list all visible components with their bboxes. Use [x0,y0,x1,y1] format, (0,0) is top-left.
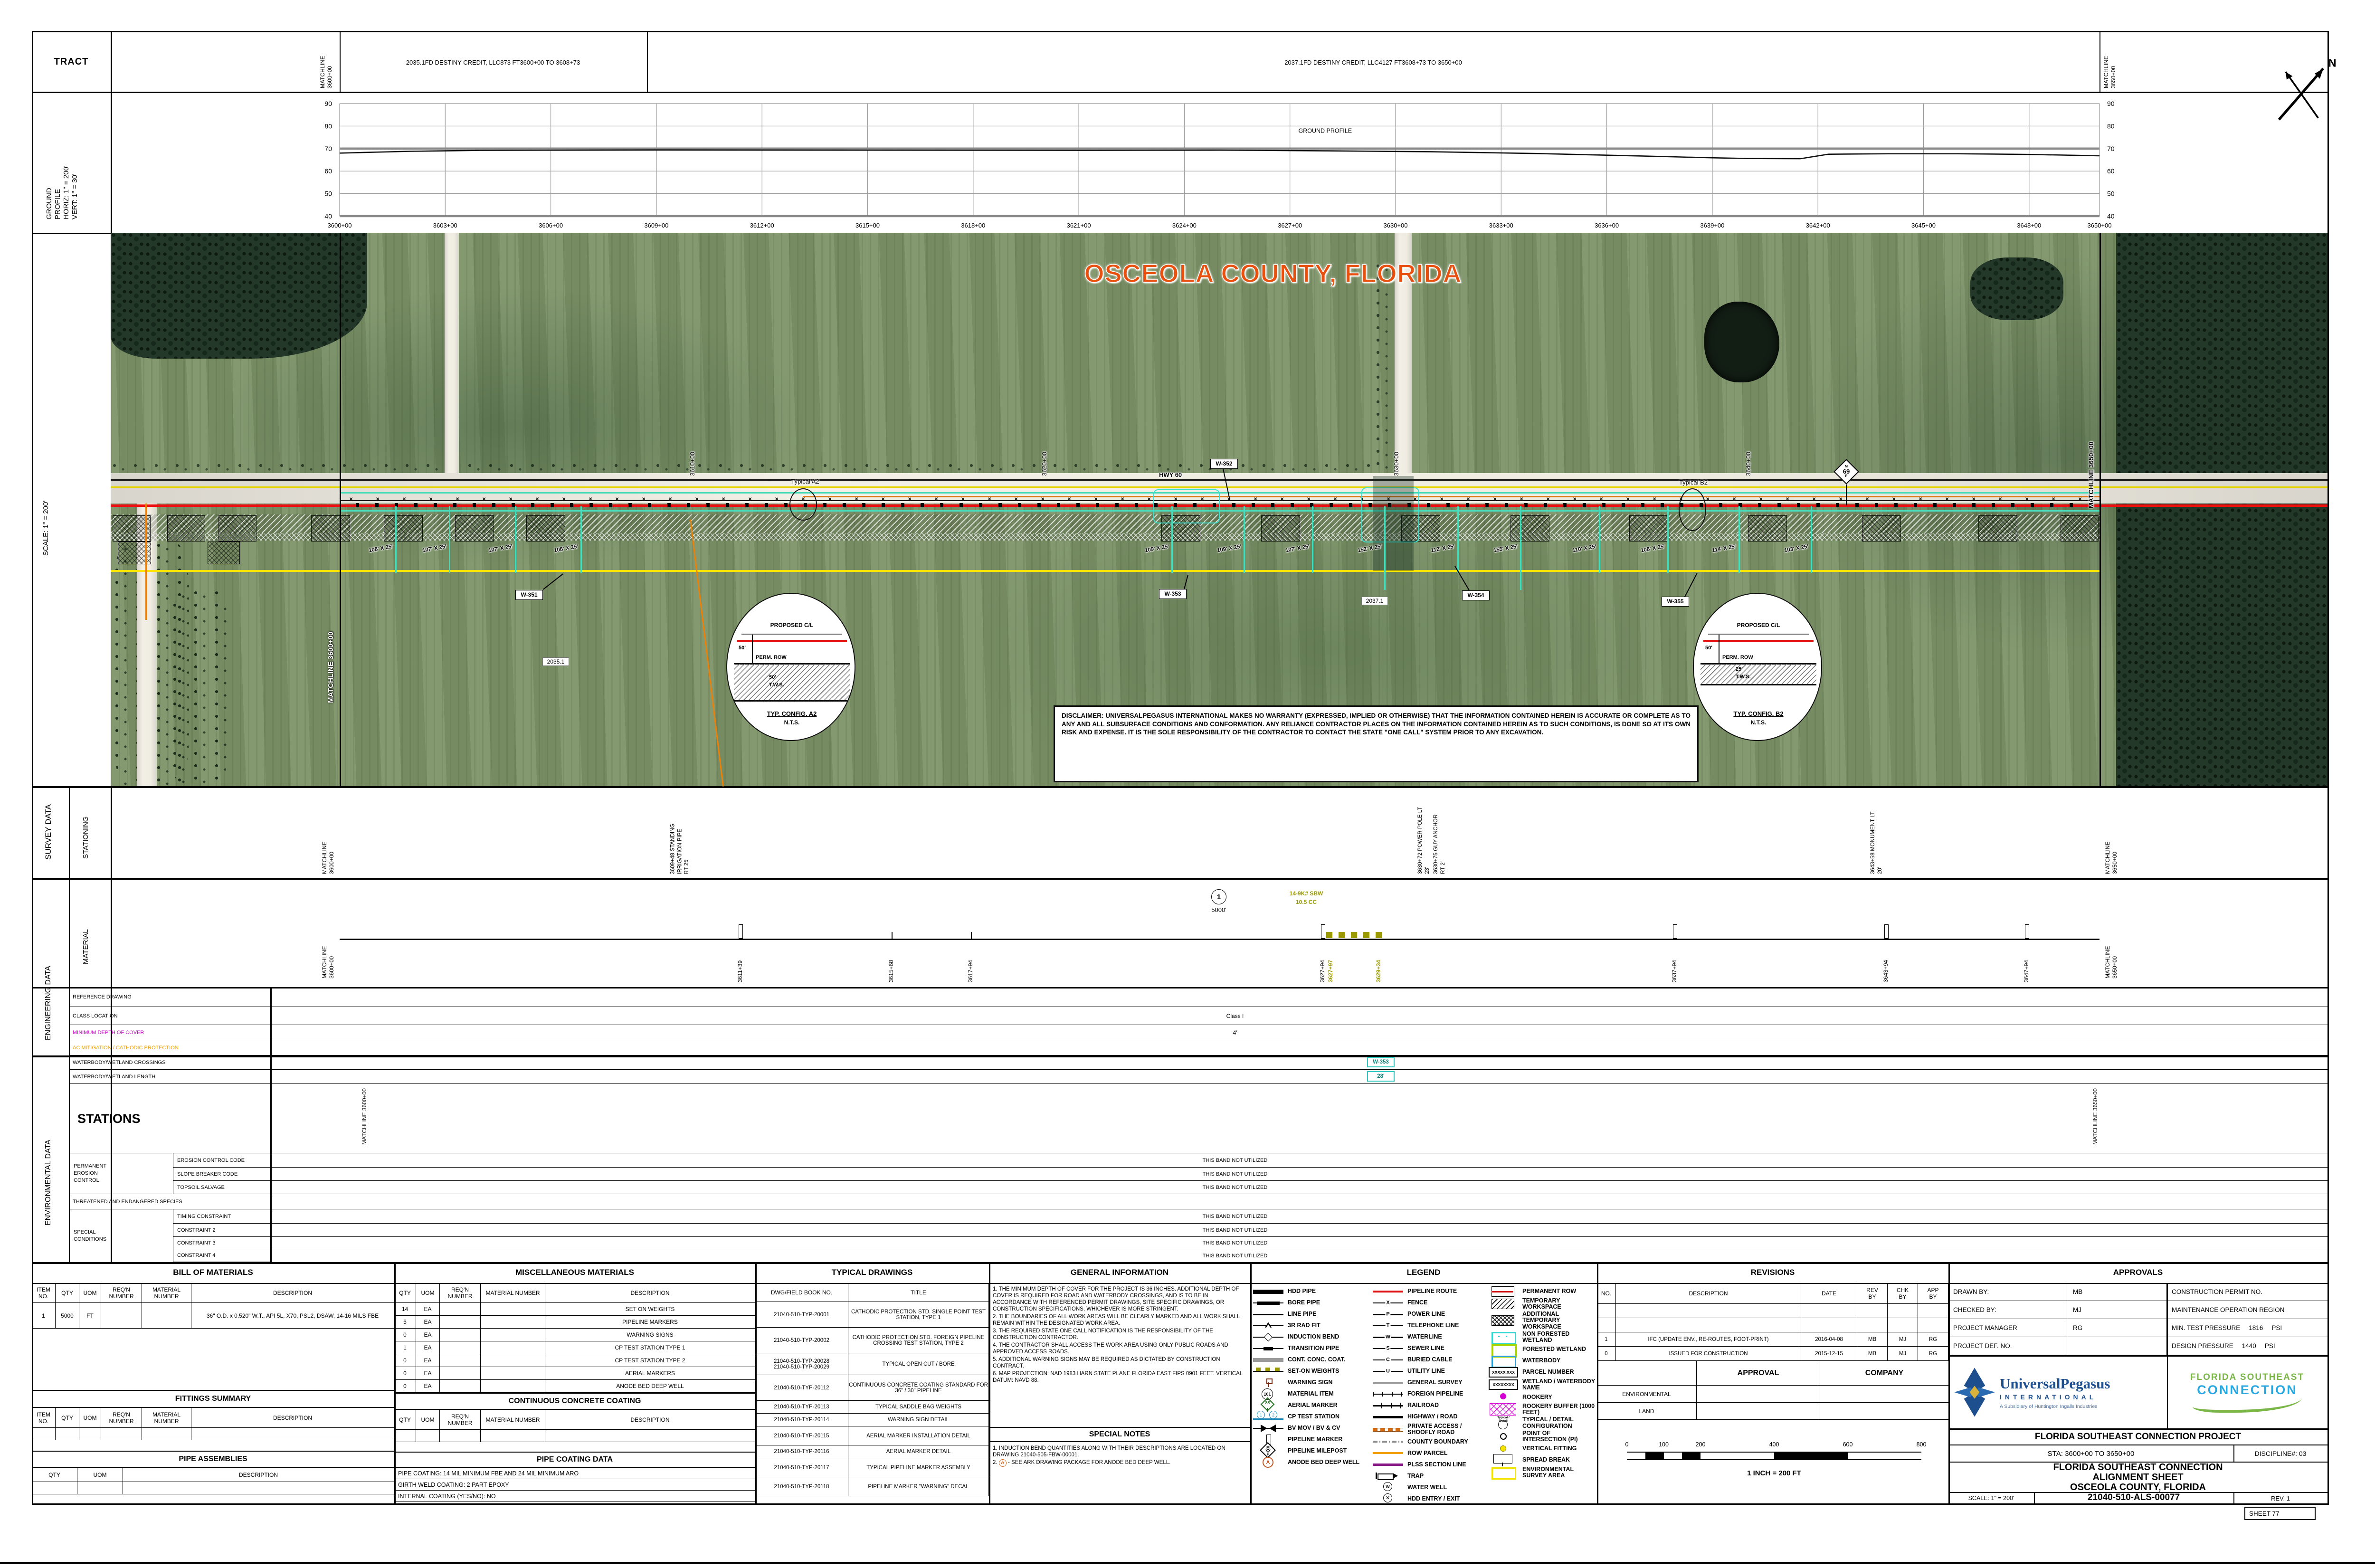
misc-row-cell: 0 [394,1329,416,1341]
legend-item: SPREAD BREAK [1488,1455,1596,1465]
atws-box [311,515,350,542]
map-station-label: 3620+00 [1041,452,1048,476]
svg-text:60: 60 [2107,167,2115,175]
forest-patch [111,233,367,359]
fence-x-mark: ✕ [1014,497,1018,502]
detail-title: TYP. CONFIG. B2 [1694,710,1822,717]
miscellaneous-materials-title: MISCELLANEOUS MATERIALS [394,1262,755,1283]
tree-cluster [1970,257,2063,320]
legend-item: WWATERLINE [1373,1332,1484,1342]
set-on-weight-mark [1376,932,1382,938]
fence-x-mark: ✕ [482,497,486,502]
scalebar-label: 600 [1838,1440,1857,1449]
cable-legend-icon: C [1373,1355,1403,1365]
map-matchline-left [340,233,341,786]
legend-item-label: WATERBODY [1522,1358,1560,1364]
band-border [32,987,2329,988]
misc-row-cell: SET ON WEIGHTS [545,1303,755,1316]
fence-x-mark: ✕ [1147,497,1151,502]
discipline-number: DISCIPLINE#: 03 [2233,1445,2327,1462]
sheet-number-box: SHEET 77 [2244,1507,2316,1520]
assemblies-row-cell [32,1482,77,1494]
tel-legend-icon: T [1373,1321,1403,1331]
approvals-unit: PSI [2271,1324,2282,1331]
detail-dim1: 50' [1705,645,1718,652]
row-border [69,1055,2327,1056]
fittings-row-cell [191,1428,394,1440]
approvals-left-label: PROJECT MANAGER [1948,1319,2067,1337]
special-note-2-text: - SEE ARK DRAWING PACKAGE FOR ANODE BED … [1008,1460,1170,1465]
legend-item: ROW PARCEL [1373,1448,1484,1458]
misc-row-cell: EA [416,1367,440,1380]
sbreak-legend-icon [1488,1455,1518,1465]
alignment-sheet: TRACTMATCHLINE3600+00MATCHLINE3650+00203… [0,0,2375,1568]
typ-row-cell: 21040-510-TYP-20002 [755,1328,848,1353]
legend-item-label: GENERAL SURVEY [1407,1379,1463,1386]
legend-item-label: BURIED CABLE [1407,1357,1452,1363]
fpipe-legend-icon [1373,1389,1403,1399]
profile-band-label: GROUNDPROFILEHORIZ: 1" = 200'VERT: 1" = … [45,165,79,219]
fence-x-mark: ✕ [509,497,513,502]
hdd-legend-icon [1253,1286,1283,1297]
svg-text:3621+00: 3621+00 [1067,222,1091,229]
material-marker [739,924,743,939]
stationing-row-label: STATIONING [82,817,90,859]
legend-item: XXXXXXXXWETLAND / WATERBODY NAME [1488,1378,1596,1391]
fence-x-mark: ✕ [1466,497,1470,502]
misc-row-cell [440,1303,481,1316]
atws-box [455,515,494,542]
band-not-utilized: THIS BAND NOT UTILIZED [997,1181,1472,1194]
trans-legend-icon [1253,1343,1283,1354]
detail-tws-line [734,700,850,702]
typ-config-b2-detail: PROPOSED C/L50'PERM. ROW25'T.W.S.TYP. CO… [1693,593,1822,741]
wbody-legend-icon [1488,1356,1518,1366]
typ-row-cell: 21040-510-TYP-20028 21040-510-TYP-20029 [755,1353,848,1375]
fsc-logo-line1: FLORIDA SOUTHEAST [2190,1372,2304,1383]
detail-top-line [1708,634,1809,635]
revisions-row-cell: 2016-04-08 [1801,1332,1857,1347]
environmental-row-label: CONSTRAINT 2 [173,1224,271,1237]
svg-text:3627+00: 3627+00 [1278,222,1302,229]
legend-item-label: ROW PARCEL [1407,1450,1448,1456]
legend-item: HIGHWAY / ROAD [1373,1412,1484,1422]
svg-text:80: 80 [324,122,332,130]
legend-item-label: PIPELINE MILEPOST [1288,1448,1347,1454]
misc-row-cell [481,1329,545,1341]
material-item-length: 5000' [1204,906,1234,913]
legend-item-label: SET-ON WEIGHTS [1288,1368,1339,1374]
special-note-2-prefix: 2. [993,1460,997,1465]
legend-item-label: ANODE BED DEEP WELL [1288,1459,1359,1465]
approvals-label: MAINTENANCE OPERATION REGION [2172,1306,2285,1313]
sow-legend-icon [1253,1366,1283,1377]
bom-header-cell: QTY [56,1283,79,1303]
band-not-utilized: THIS BAND NOT UTILIZED [997,1209,1472,1224]
typd-legend-icon: Typical / Detail [1488,1418,1518,1428]
revisions-row-cell [1801,1318,1857,1332]
company-header: COMPANY [1820,1361,1948,1386]
atws-box [2061,515,2099,542]
tree-cluster [171,589,228,786]
typ-row-cell: CATHODIC PROTECTION STD. FOREIGN PIPELIN… [848,1328,989,1353]
fence-x-mark: ✕ [2078,497,2082,502]
material-baseline [340,939,2099,940]
fence-x-mark: ✕ [429,497,433,502]
fence-x-mark: ✕ [1732,497,1736,502]
misc-row-cell: 0 [394,1367,416,1380]
typ-config-a2-detail: PROPOSED C/L50'PERM. ROW50'T.W.S.TYP. CO… [726,593,855,741]
legend-item-label: UTILITY LINE [1407,1368,1445,1374]
legend-column: PIPELINE ROUTEXFENCEPPOWER LINETTELEPHON… [1370,1284,1485,1502]
engineering-row-label: REFERENCE DRAWING [69,987,271,1007]
workspace-tick [1599,506,1600,573]
fence-x-mark: ✕ [881,497,885,502]
workspace-tick [1667,506,1669,573]
legend-title: LEGEND [1250,1262,1597,1283]
hwy60-label: HWY 60 [1159,471,1202,480]
legend-item-label: 3R RAD FIT [1288,1322,1320,1329]
revisions-row-cell: MJ [1888,1332,1918,1347]
workspace-tick [515,506,516,573]
material-row-label: MATERIAL [82,929,90,964]
scalebar-segment [1848,1452,1921,1460]
legend-item: PRIVATE ACCESS / SHOOFLY ROAD [1373,1423,1484,1435]
fence-x-mark: ✕ [1094,497,1098,502]
legend-item-label: POWER LINE [1407,1311,1445,1317]
cpts-legend-icon: 12 [1253,1412,1283,1422]
misc-row-cell [481,1341,545,1354]
workspace-tick [1171,506,1173,573]
svg-text:70: 70 [2107,145,2115,152]
typ-header-cell: TITLE [848,1283,989,1302]
approvals-right-row: MIN. TEST PRESSURE1816PSI [2167,1319,2327,1337]
bom-row-cell [101,1303,142,1329]
revisions-header-cell: NO. [1597,1283,1616,1304]
tract-cell-border [2099,32,2100,92]
gsurv-legend-icon [1373,1378,1403,1388]
svg-text:3606+00: 3606+00 [539,222,563,229]
svg-text:3612+00: 3612+00 [750,222,774,229]
fence-x-mark: ✕ [722,497,725,502]
environmental-row-label: TIMING CONSTRAINT [173,1209,271,1224]
misc-row-cell [440,1367,481,1380]
band-not-utilized: THIS BAND NOT UTILIZED [997,1249,1472,1262]
material-station-label-olive: 3627+97 [1327,960,1334,982]
misc-header-cell: UOM [416,1283,440,1303]
rail-legend-icon [1373,1400,1403,1411]
workspace-tick [1312,506,1313,573]
pec-group-label: PERMANENTEROSIONCONTROL [69,1153,173,1194]
band-border [32,878,2329,880]
legend-item-label: PERMANENT ROW [1522,1288,1576,1294]
typ-row-cell: WARNING SIGN DETAIL [848,1414,989,1426]
approvals-value: 1440 [2242,1342,2256,1349]
station-range: STA: 3600+00 TO 3650+00 [1948,1445,2233,1462]
revisions-row-cell: MB [1857,1347,1888,1361]
misc-row-cell: EA [416,1354,440,1367]
row-parcel-line-left [145,504,147,620]
survey-annotation: 3630+75 GUY ANCHORRT 2' [1433,815,1446,874]
approval-row-label: LAND [1597,1403,1697,1420]
revisions-row-cell [1616,1318,1801,1332]
misc-header-cell: QTY [394,1283,416,1303]
misc-row-cell [481,1354,545,1367]
typ-row-cell: PIPELINE MARKER "WARNING" DECAL [848,1477,989,1496]
legend-item: UUTILITY LINE [1373,1366,1484,1377]
parcel-number-label: 2035.1 [542,657,569,666]
svg-text:3650+00: 3650+00 [2088,222,2112,229]
special-notes-title: SPECIAL NOTES [989,1427,1250,1442]
sbw-note-line1: 14-9K# SBW [1278,890,1335,897]
ccc-row-cell [394,1430,416,1442]
fsc-logo-swoosh [2193,1397,2302,1413]
revisions-header-cell: DATE [1801,1283,1857,1304]
svg-text:3645+00: 3645+00 [1911,222,1936,229]
svg-text:50: 50 [2107,190,2115,198]
hwy-legend-icon [1373,1412,1403,1422]
svg-text:70: 70 [324,145,332,152]
rook-legend-icon [1488,1392,1518,1402]
ccc-header-cell: UOM [416,1410,440,1430]
fence-x-mark: ✕ [1786,497,1789,502]
legend-item-label: ADDITIONAL TEMPORARY WORKSPACE [1522,1311,1596,1330]
legend-item-label: ROOKERY BUFFER (1000 FEET) [1522,1403,1596,1416]
approval-row-cell [1697,1386,1820,1403]
fittings-header-cell: ITEM NO. [32,1408,56,1428]
up-name: UniversalPegasus [2000,1375,2110,1392]
legend-item: RAILROAD [1373,1400,1484,1411]
approvals-value: 1816 [2249,1324,2263,1331]
typ-row-cell: TYPICAL SADDLE BAG WEIGHTS [848,1401,989,1414]
detail-dim-line [1719,635,1719,664]
misc-row-cell: 0 [394,1380,416,1393]
scalebar-segment [1627,1452,1645,1460]
fence-x-mark: ✕ [1121,497,1124,502]
misc-row-cell: EA [416,1329,440,1341]
legend-item-label: NON FORESTED WETLAND [1522,1331,1596,1343]
svg-text:3615+00: 3615+00 [855,222,880,229]
detail-nts: N.T.S. [1694,719,1822,726]
fence-x-mark: ✕ [1599,497,1603,502]
detail-tws-line [1700,684,1816,685]
detail-proposed-cl-label: PROPOSED C/L [1694,621,1822,629]
drawing-number: 21040-510-ALS-00077 [2034,1492,2233,1503]
band-border [32,786,2329,788]
fence-x-mark: ✕ [1653,497,1656,502]
milepost-stem [1846,485,1847,505]
fence-x-mark: ✕ [535,497,539,502]
assemblies-header-cell: QTY [32,1468,77,1482]
legend-item-label: INDUCTION BEND [1288,1334,1339,1340]
legend-item-label: HDD PIPE [1288,1288,1316,1294]
special-notes: 1. INDUCTION BEND QUANTITIES ALONG WITH … [989,1442,1250,1503]
power-legend-icon: P [1373,1309,1403,1320]
tract-info: 2035.1FD DESTINY CREDIT, LLC873 FT3600+0… [370,37,617,88]
approvals-left-value [2067,1337,2167,1355]
atws-box [1862,515,1901,542]
revisions-title: REVISIONS [1597,1262,1948,1283]
typical-a-ellipse [789,488,817,521]
tws-legend-icon [1488,1299,1518,1309]
typ-row-cell: CONTINUOUS CONCRETE COATING STANDARD FOR… [848,1375,989,1401]
bom-row-cell: 36" O.D. x 0.520" W.T., API 5L, X70, PSL… [191,1303,394,1329]
fence-x-mark: ✕ [1333,497,1337,502]
material-station-label: 3637+94 [1671,960,1678,982]
approvals-unit: PSI [2265,1342,2275,1349]
legend-item: PIPELINE MARKER [1253,1435,1369,1445]
atws-box [113,515,151,542]
wetland-id-label: W-353 [1159,589,1187,599]
parcel-legend-icon: XXXXX.XXX [1488,1367,1518,1378]
environmental-row-label: SLOPE BREAKER CODE [173,1168,271,1181]
legend-item: VERTICAL FITTING [1488,1444,1596,1454]
bom-header-cell: ITEM NO. [32,1283,56,1303]
misc-row-cell [440,1316,481,1329]
legend-item: 101MATERIAL ITEM [1253,1389,1369,1399]
atws-box [218,515,256,542]
bom-row-cell: 1 [32,1303,56,1329]
fittings-summary-title: FITTINGS SUMMARY [32,1390,394,1408]
legend-item-label: LINE PIPE [1288,1311,1316,1317]
typ-row-cell: 21040-510-TYP-20112 [755,1375,848,1401]
bom-header-cell: MATERIAL NUMBER [142,1283,191,1303]
material-marker [1884,924,1889,939]
legend-body: HDD PIPEBORE PIPELINE PIPE3R RAD FITINDU… [1250,1284,1597,1502]
misc-row-cell: CP TEST STATION TYPE 2 [545,1354,755,1367]
typ-row-cell: 21040-510-TYP-20116 [755,1445,848,1458]
row-border [69,1083,2327,1084]
amark-legend-icon: XX [1253,1400,1283,1411]
engineering-row-label: AC MITIGATION / CATHODIC PROTECTION [69,1040,271,1055]
approvals-left-label: PROJECT DEF. NO. [1948,1337,2067,1355]
misc-header-cell: REQ'N NUMBER [440,1283,481,1303]
legend-item-label: TEMPORARY WORKSPACE [1522,1298,1596,1310]
svg-text:3648+00: 3648+00 [2017,222,2041,229]
legend-item: SET-ON WEIGHTS [1253,1366,1369,1377]
band-not-utilized: THIS BAND NOT UTILIZED [997,1153,1472,1168]
pipe-coating-title: PIPE COATING DATA [394,1452,755,1468]
revisions-header-cell: REV BY [1857,1283,1888,1304]
scalebar-label: 100 [1654,1440,1673,1449]
typ-row-cell: 21040-510-TYP-20118 [755,1477,848,1496]
material-item-bubble: 1 [1211,889,1226,904]
legend-item: SSEWER LINE [1373,1343,1484,1354]
workspace-tick [1738,506,1740,573]
typical-a-label: Typical A2 [779,477,831,485]
revisions-row-cell: RG [1918,1347,1948,1361]
tract-matchline-right: MATCHLINE3650+00 [2103,56,2117,88]
misc-row-cell: EA [416,1380,440,1393]
legend-item: FOREIGN PIPELINE [1373,1389,1484,1399]
misc-row-cell: 0 [394,1354,416,1367]
svg-text:50: 50 [324,190,332,198]
ccc-header-cell: DESCRIPTION [545,1410,755,1430]
page-bottom-edge [0,1562,2375,1564]
misc-row-cell: PIPELINE MARKERS [545,1316,755,1329]
line-legend-icon [1253,1309,1283,1320]
typ-row-cell: CATHODIC PROTECTION STD. SINGLE POINT TE… [848,1302,989,1328]
approvals-label: CONSTRUCTION PERMIT NO. [2172,1288,2262,1295]
legend-item: NON FORESTED WETLAND [1488,1331,1596,1343]
anode-circle-a-icon: A [999,1459,1007,1467]
north-arrow: N [2260,53,2346,132]
detail-perm-row-label: PERM. ROW [1722,655,1779,661]
environmental-row-label: WATERBODY/WETLAND CROSSINGS [69,1055,271,1070]
vfit-legend-icon [1488,1444,1518,1454]
svg-text:40: 40 [2107,212,2115,220]
set-on-weight-mark [1326,932,1332,938]
scalebar-label: 800 [1912,1440,1931,1449]
fence-x-mark: ✕ [1254,497,1257,502]
ccc-row-cell [416,1430,440,1442]
tract-info: 2037.1FD DESTINY CREDIT, LLC4127 FT3608+… [1250,37,1497,88]
detail-perm-row-label: PERM. ROW [756,655,813,661]
nfwet-legend-icon [1488,1332,1518,1342]
material-tick [971,932,972,939]
plss-legend-icon [1373,1459,1403,1470]
map-station-label: 3640+00 [1745,452,1752,476]
set-on-weight-mark [1351,932,1357,938]
fence-x-mark: ✕ [748,497,752,502]
environmental-row-label: CONSTRAINT 3 [173,1237,271,1249]
legend-item: MXXPPIPELINE MILEPOST [1253,1446,1369,1456]
legend-item: TRAP [1373,1471,1484,1481]
legend-item-label: WATERLINE [1407,1334,1442,1340]
legend-item: AANODE BED DEEP WELL [1253,1457,1369,1468]
svg-text:80: 80 [2107,122,2115,130]
util-legend-icon: U [1373,1366,1403,1377]
typ-row-cell: AERIAL MARKER INSTALLATION DETAIL [848,1426,989,1445]
legend-item-label: WARNING SIGN [1288,1379,1332,1386]
legend-item: WWATER WELL [1373,1482,1484,1492]
fence-x-mark: ✕ [1546,497,1550,502]
approvals-left-label: DRAWN BY: [1948,1283,2067,1301]
legend-item: GENERAL SURVEY [1373,1378,1484,1388]
legend-item: ✕HDD ENTRY / EXIT [1373,1493,1484,1504]
fence-x-mark: ✕ [349,497,353,502]
assemblies-header-cell: UOM [77,1468,123,1482]
misc-row-cell [481,1367,545,1380]
ccc-row-cell [440,1430,481,1442]
fittings-row-cell [79,1428,101,1440]
misc-row-cell [481,1303,545,1316]
legend-column: PERMANENT ROWTEMPORARY WORKSPACEADDITION… [1485,1284,1597,1502]
disclaimer-box: DISCLAIMER: UNIVERSALPEGASUS INTERNATION… [1054,705,1699,782]
bom-row-cell [142,1303,191,1329]
misc-row-cell: 1 [394,1341,416,1354]
legend-item-label: TRANSITION PIPE [1288,1345,1339,1351]
typical-b-ellipse [1679,488,1706,531]
revisions-header-cell: CHK BY [1888,1283,1918,1304]
revisions-row-cell: IFC (UPDATE ENV., RE-ROUTES, FOOT-PRINT) [1616,1332,1801,1347]
legend-item: 12CP TEST STATION [1253,1412,1369,1422]
legend-item: TTELEPHONE LINE [1373,1321,1484,1331]
fence-x-mark: ✕ [1520,497,1523,502]
survey-matchline-right: MATCHLINE3650+00 [2104,842,2118,874]
svg-text:90: 90 [2107,100,2115,107]
survey-matchline-left: MATCHLINE3600+00 [321,842,335,874]
assemblies-row-cell [77,1482,123,1494]
legend-item: TRANSITION PIPE [1253,1343,1369,1354]
bom-row-cell: FT [79,1303,101,1329]
legend-item: PPOWER LINE [1373,1309,1484,1320]
fence-x-mark: ✕ [456,497,459,502]
approval-row-cell [1820,1386,1948,1403]
legend-item-label: PLSS SECTION LINE [1407,1462,1466,1468]
set-on-weight-mark [1363,932,1369,938]
scalebar-segment [1700,1452,1774,1460]
